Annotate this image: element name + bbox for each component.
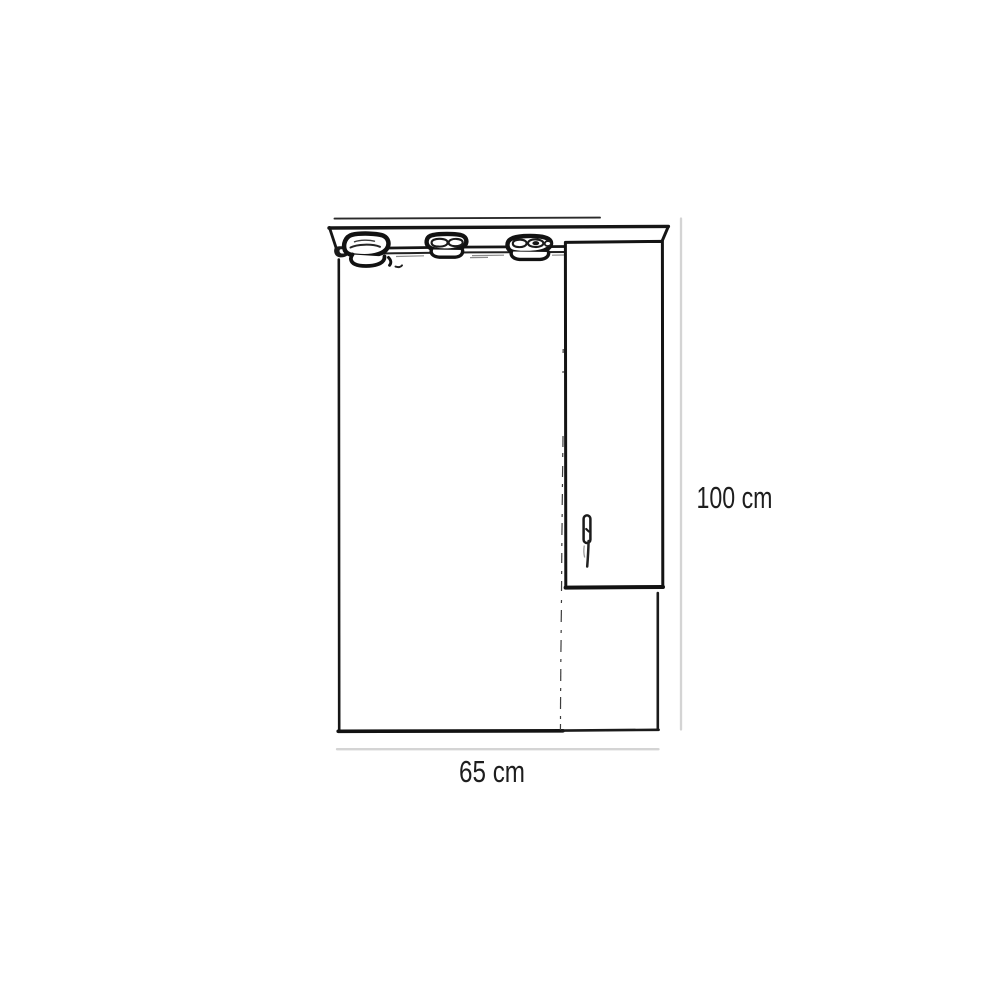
svg-text:65 cm: 65 cm (459, 754, 525, 789)
svg-text:100 cm: 100 cm (697, 480, 773, 515)
